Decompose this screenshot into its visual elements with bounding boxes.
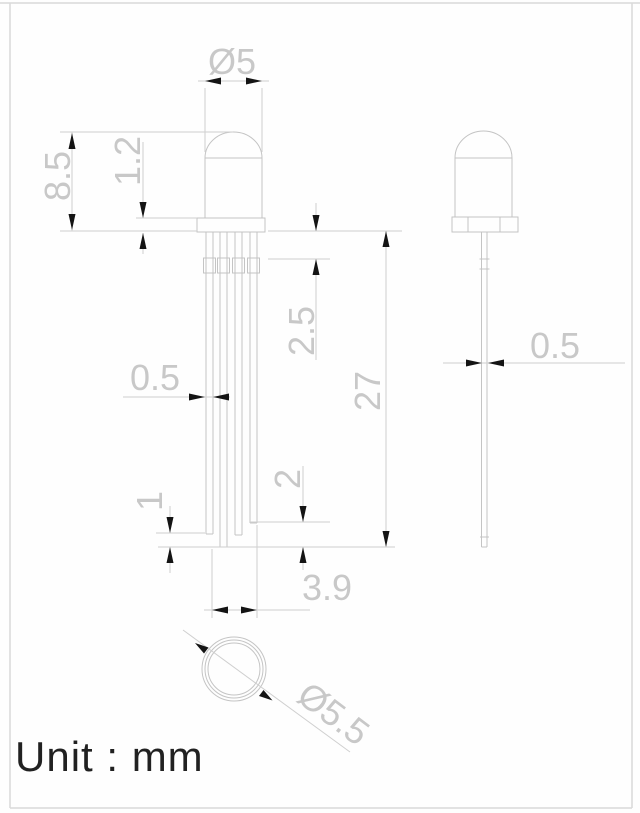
- dim-lead-width-front: 0.5: [123, 357, 230, 401]
- front-lead-3: [233, 232, 245, 535]
- dim-flange-thickness: 1.2: [107, 136, 197, 254]
- front-dome-outline: [205, 132, 262, 158]
- dim-label-flange-thickness: 1.2: [107, 136, 148, 186]
- arrow-right-icon: [466, 360, 482, 367]
- arrow-up-icon: [313, 259, 320, 275]
- front-lead-4: [248, 232, 260, 523]
- front-lead-2: [218, 232, 230, 547]
- arrow-left-icon: [213, 394, 229, 401]
- dim-label-lead-step-short: 1: [129, 491, 170, 511]
- arrow-up-icon: [167, 547, 174, 563]
- arrow-down-icon: [69, 214, 76, 230]
- dim-lead-span: 3.9: [204, 525, 352, 618]
- dim-lead-step-shorter: 2: [250, 466, 330, 570]
- arrow-down-icon: [167, 517, 174, 533]
- arrow-left-icon: [212, 607, 228, 614]
- arrow-down-icon: [300, 506, 307, 522]
- lead-crimp: [204, 258, 216, 273]
- dim-label-lead-span: 3.9: [302, 567, 352, 608]
- dim-label-lens-diameter: Ø5: [208, 41, 256, 82]
- arrow-right-icon: [189, 394, 205, 401]
- bottom-view: Ø5.5: [183, 630, 377, 753]
- arrow-down-icon: [383, 531, 390, 547]
- arrow-right-icon: [241, 607, 257, 614]
- side-view: [452, 131, 518, 547]
- bottom-body-circle: [205, 640, 263, 698]
- led-dimension-drawing: Ø5 8.5 1.2 2.5 27 0.5: [0, 0, 640, 813]
- dim-label-lead-length: 27: [347, 371, 388, 411]
- unit-note: Unit : mm: [15, 733, 204, 780]
- dim-lead-thickness-side: 0.5: [443, 325, 625, 367]
- dim-lens-diameter: Ø5: [198, 41, 269, 152]
- bottom-inner-circle: [208, 643, 260, 695]
- arrow-down-icon: [140, 202, 147, 218]
- dim-label-lead-width: 0.5: [130, 357, 180, 398]
- dim-lead-crimp-offset: 2.5: [268, 203, 402, 360]
- dim-label-flange-diameter: Ø5.5: [290, 674, 377, 754]
- lead-crimp: [218, 258, 230, 273]
- bottom-flange-circle: [202, 637, 266, 701]
- front-view: [197, 132, 265, 547]
- arrow-up-icon: [300, 547, 307, 563]
- lead-crimp: [233, 258, 245, 273]
- arrow-left-icon: [488, 360, 504, 367]
- arrow-up-icon: [140, 233, 147, 249]
- dim-label-lead-thickness: 0.5: [530, 325, 580, 366]
- drawing-sheet: Ø5 8.5 1.2 2.5 27 0.5: [0, 0, 640, 813]
- front-flange: [197, 218, 265, 232]
- dim-lead-step-short: 1: [129, 491, 205, 573]
- front-lead-1: [204, 232, 216, 534]
- arrow-up-icon: [69, 133, 76, 149]
- side-flange: [452, 217, 518, 232]
- dim-lead-length: 27: [347, 231, 390, 547]
- lead-crimp: [248, 258, 260, 273]
- arrow-up-icon: [383, 231, 390, 247]
- side-dome-outline: [455, 131, 512, 158]
- arrow-down-icon: [313, 215, 320, 231]
- dim-label-lead-step-shorter: 2: [267, 469, 308, 489]
- arrow-down-right-icon: [259, 690, 273, 701]
- side-lead: [480, 232, 490, 547]
